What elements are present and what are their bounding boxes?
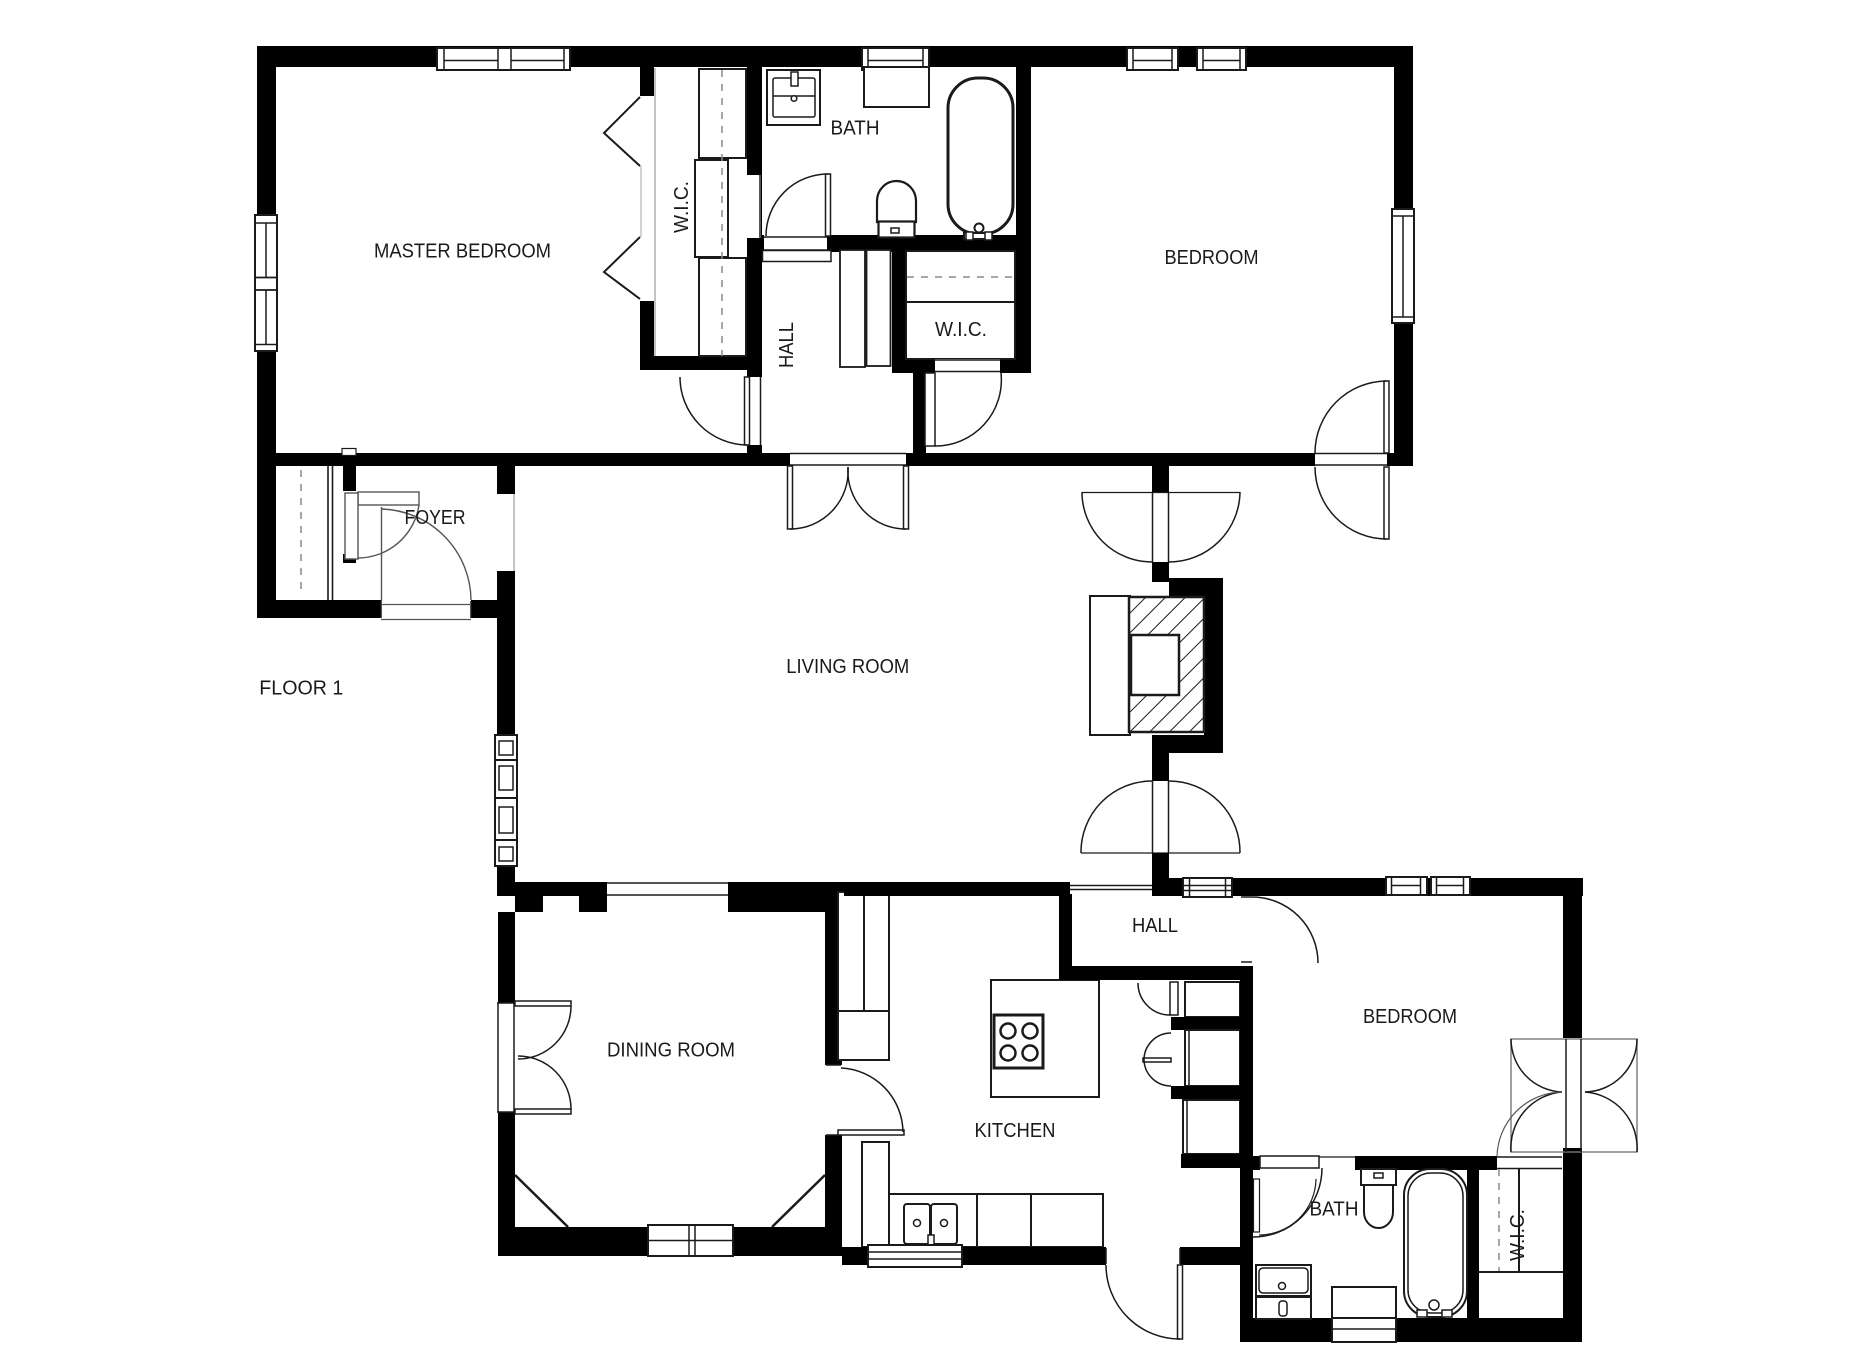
svg-text:KITCHEN: KITCHEN: [975, 1120, 1056, 1142]
svg-text:MASTER BEDROOM: MASTER BEDROOM: [374, 241, 551, 263]
svg-text:LIVING ROOM: LIVING ROOM: [786, 656, 909, 678]
svg-text:HALL: HALL: [1132, 915, 1178, 937]
svg-text:BATH: BATH: [1310, 1199, 1359, 1221]
svg-text:W.I.C.: W.I.C.: [671, 181, 693, 233]
svg-text:BEDROOM: BEDROOM: [1165, 247, 1259, 269]
svg-text:W.I.C.: W.I.C.: [1507, 1209, 1529, 1261]
svg-text:HALL: HALL: [776, 322, 798, 368]
svg-text:BEDROOM: BEDROOM: [1363, 1006, 1457, 1028]
svg-text:W.I.C.: W.I.C.: [935, 319, 987, 341]
svg-text:DINING ROOM: DINING ROOM: [607, 1039, 735, 1061]
svg-text:BATH: BATH: [831, 118, 880, 140]
svg-text:FLOOR 1: FLOOR 1: [259, 678, 343, 700]
svg-text:FOYER: FOYER: [405, 507, 466, 529]
